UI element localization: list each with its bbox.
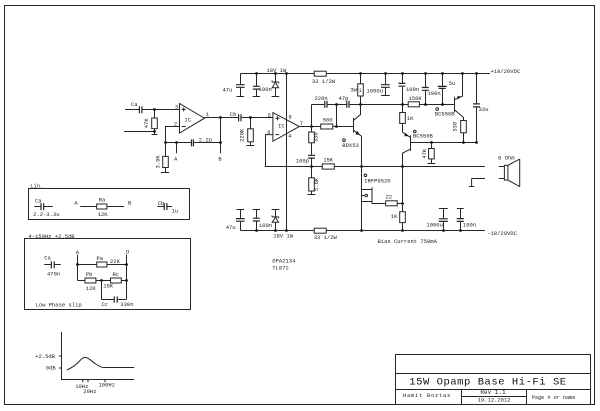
svg-text:+2.5dB: +2.5dB bbox=[35, 353, 56, 360]
svg-text:15W Opamp Base Hi-Fi SE: 15W Opamp Base Hi-Fi SE bbox=[409, 377, 566, 389]
svg-text:OPA2134: OPA2134 bbox=[272, 257, 296, 264]
svg-text:18V 1W: 18V 1W bbox=[267, 67, 288, 74]
svg-text:Bias Current 750mA: Bias Current 750mA bbox=[378, 238, 438, 245]
svg-text:IRFP9520: IRFP9520 bbox=[364, 177, 390, 184]
svg-text:12K: 12K bbox=[86, 285, 97, 292]
svg-text:47u: 47u bbox=[226, 224, 236, 231]
svg-text:100Hz: 100Hz bbox=[99, 382, 116, 389]
svg-text:19.12.2012: 19.12.2012 bbox=[478, 397, 511, 404]
svg-text:BDX53: BDX53 bbox=[342, 142, 359, 149]
svg-text:8 Ohm: 8 Ohm bbox=[498, 155, 515, 162]
svg-text:33 1/2W: 33 1/2W bbox=[314, 234, 338, 241]
svg-text:47u: 47u bbox=[223, 86, 233, 93]
svg-text:1: 1 bbox=[359, 88, 362, 94]
svg-text:Page # or name: Page # or name bbox=[532, 395, 576, 401]
svg-text:100n: 100n bbox=[259, 222, 272, 229]
svg-text:47p: 47p bbox=[339, 95, 349, 102]
svg-text:2.2p: 2.2p bbox=[199, 136, 212, 143]
svg-text:Ra: Ra bbox=[99, 197, 106, 204]
svg-text:3.9K: 3.9K bbox=[154, 155, 161, 169]
svg-text:Cb: Cb bbox=[230, 111, 237, 118]
svg-text:100n: 100n bbox=[428, 90, 441, 97]
svg-text:+18/20VDC: +18/20VDC bbox=[491, 68, 521, 75]
svg-text:8: 8 bbox=[288, 114, 291, 121]
svg-text:IC: IC bbox=[278, 122, 285, 129]
svg-text:47K: 47K bbox=[421, 148, 428, 159]
svg-text:Cb: Cb bbox=[158, 200, 165, 207]
svg-text:22K: 22K bbox=[110, 258, 121, 265]
svg-text:5: 5 bbox=[268, 112, 271, 119]
svg-text:1K: 1K bbox=[391, 213, 398, 220]
svg-text:150K: 150K bbox=[409, 95, 423, 102]
svg-text:3: 3 bbox=[175, 103, 178, 110]
svg-text:5.6K: 5.6K bbox=[313, 177, 320, 191]
svg-text:Ca: Ca bbox=[35, 198, 42, 205]
svg-text:15K: 15K bbox=[323, 157, 334, 164]
svg-text:330: 330 bbox=[452, 122, 459, 132]
svg-text:100n: 100n bbox=[406, 86, 419, 93]
svg-text:Lin.: Lin. bbox=[30, 182, 43, 189]
svg-text:15K: 15K bbox=[103, 283, 114, 290]
svg-text:100n: 100n bbox=[259, 86, 272, 93]
svg-text:220n: 220n bbox=[315, 95, 328, 102]
svg-text:18V 1W: 18V 1W bbox=[273, 232, 294, 239]
svg-text:TL072: TL072 bbox=[272, 265, 289, 272]
svg-text:20Hz: 20Hz bbox=[83, 388, 96, 395]
svg-text:1K: 1K bbox=[407, 115, 414, 122]
svg-text:Cc: Cc bbox=[102, 301, 109, 308]
svg-text:33u: 33u bbox=[479, 106, 489, 113]
svg-text:-18/20VDC: -18/20VDC bbox=[487, 230, 517, 237]
svg-text:4-150Hz +2.5dB: 4-150Hz +2.5dB bbox=[28, 233, 75, 240]
svg-text:Rev 1.1: Rev 1.1 bbox=[480, 389, 506, 396]
svg-text:47K: 47K bbox=[143, 118, 150, 129]
svg-text:BC556B: BC556B bbox=[413, 132, 434, 139]
svg-text:Pb: Pb bbox=[86, 271, 93, 278]
svg-text:Ca: Ca bbox=[44, 254, 51, 261]
svg-text:IC: IC bbox=[185, 116, 192, 123]
svg-text:Low Phase slip: Low Phase slip bbox=[36, 302, 82, 309]
svg-text:33 1/2W: 33 1/2W bbox=[312, 78, 336, 85]
svg-text:330n: 330n bbox=[120, 301, 133, 308]
svg-text:22: 22 bbox=[386, 193, 393, 200]
svg-text:1000u: 1000u bbox=[426, 222, 443, 229]
svg-text:Ca: Ca bbox=[131, 101, 138, 108]
svg-text:12K: 12K bbox=[98, 211, 109, 218]
svg-text:2.2-3.3u: 2.2-3.3u bbox=[33, 211, 59, 218]
svg-text:Pa: Pa bbox=[97, 255, 104, 262]
svg-text:100n: 100n bbox=[463, 221, 476, 228]
svg-text:470n: 470n bbox=[47, 271, 60, 278]
svg-text:Hamit Boztas: Hamit Boztas bbox=[403, 392, 451, 399]
svg-text:220K: 220K bbox=[239, 128, 246, 142]
svg-text:330: 330 bbox=[312, 132, 319, 142]
svg-text:5u: 5u bbox=[449, 80, 456, 87]
svg-text:BC556B: BC556B bbox=[435, 110, 456, 117]
svg-text:560: 560 bbox=[323, 117, 333, 124]
svg-text:0dB: 0dB bbox=[46, 365, 57, 372]
svg-text:1u: 1u bbox=[172, 208, 179, 215]
svg-text:3W: 3W bbox=[350, 87, 357, 94]
svg-text:Rc: Rc bbox=[113, 271, 120, 278]
svg-text:1000u: 1000u bbox=[367, 87, 384, 94]
svg-text:6: 6 bbox=[267, 129, 270, 136]
svg-text:100p: 100p bbox=[296, 158, 309, 165]
